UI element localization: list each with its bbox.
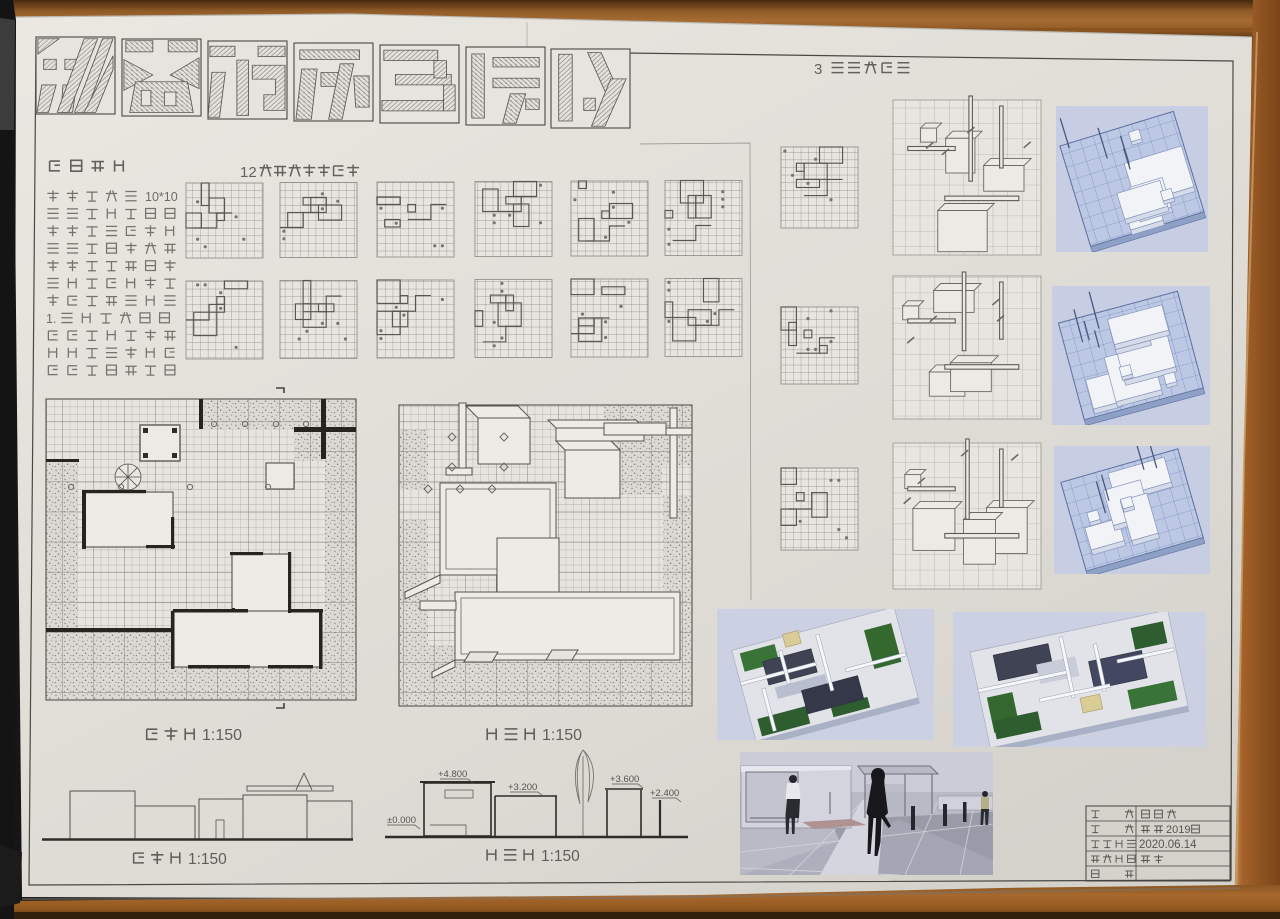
svg-text:1.: 1. xyxy=(46,312,56,326)
svg-text:1:150: 1:150 xyxy=(542,727,582,744)
svg-text:12: 12 xyxy=(240,164,257,181)
svg-text:+4.800: +4.800 xyxy=(438,769,467,780)
svg-text:1:150: 1:150 xyxy=(202,727,242,744)
svg-text:+2.400: +2.400 xyxy=(650,788,679,799)
svg-text:1:150: 1:150 xyxy=(541,848,580,865)
svg-text:1:150: 1:150 xyxy=(188,851,227,868)
svg-text:3: 3 xyxy=(814,61,822,78)
svg-text:+3.600: +3.600 xyxy=(610,774,639,785)
svg-text:10*10: 10*10 xyxy=(145,190,178,204)
svg-text:2019: 2019 xyxy=(1166,824,1190,836)
svg-text:2020.06.14: 2020.06.14 xyxy=(1139,839,1197,851)
svg-text:+3.200: +3.200 xyxy=(508,782,537,793)
svg-text:±0.000: ±0.000 xyxy=(387,815,416,826)
